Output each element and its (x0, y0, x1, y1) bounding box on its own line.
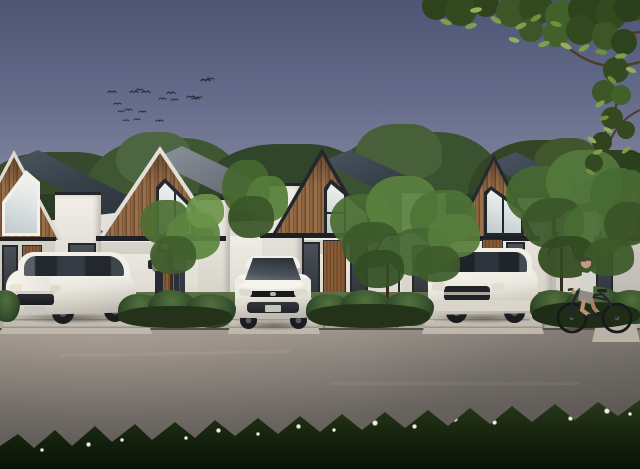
white-flower (332, 428, 336, 432)
shrub (0, 290, 20, 322)
white-flower (296, 424, 301, 429)
architectural-rendering-scene (0, 0, 640, 469)
white-flower (40, 448, 44, 452)
cyclist (540, 246, 640, 346)
white-flower (184, 436, 188, 440)
shrub-base (308, 304, 430, 328)
leaf-cluster (422, 0, 640, 172)
white-flower (216, 428, 221, 433)
white-flower (86, 442, 91, 447)
overhanging-branch (416, 0, 640, 188)
shrub-base (118, 306, 232, 328)
white-flower (120, 438, 124, 442)
white-flower (256, 432, 260, 436)
white-flower (628, 412, 632, 416)
white-flower (412, 424, 417, 429)
cyclist-rider (571, 257, 604, 318)
